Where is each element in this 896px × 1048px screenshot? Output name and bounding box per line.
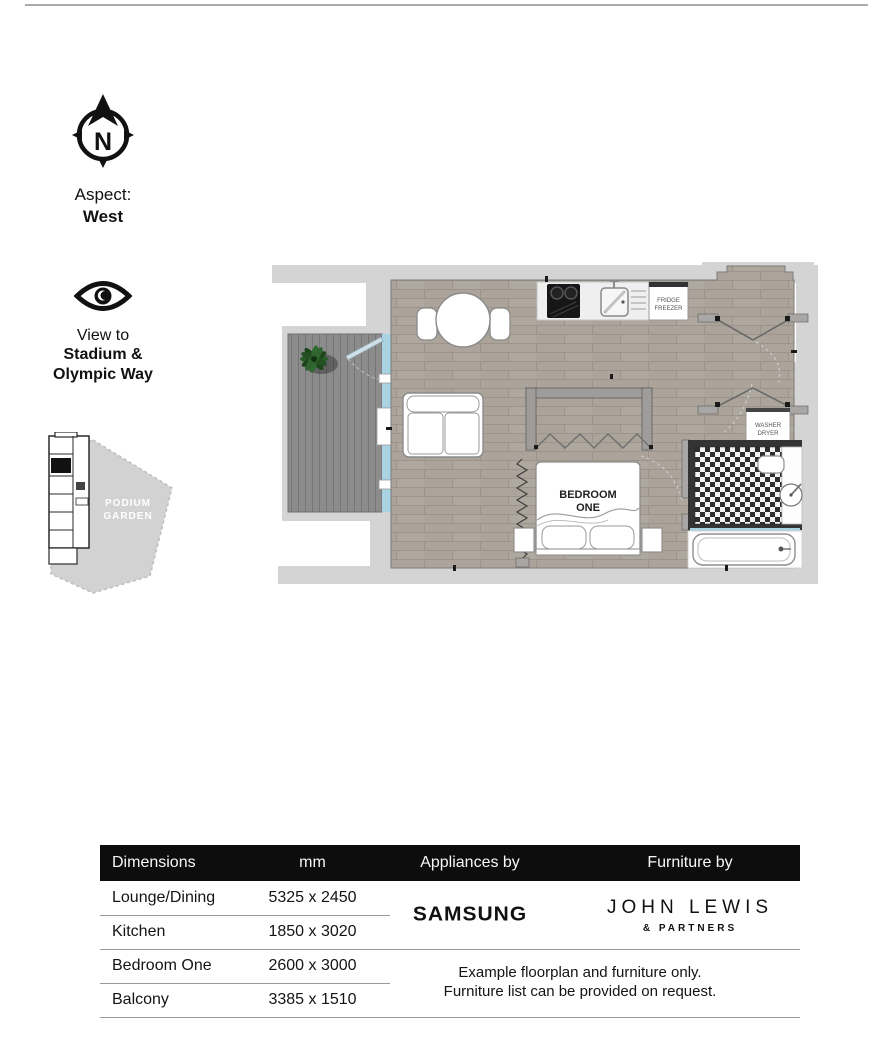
washer-label-line1: WASHER (755, 423, 782, 429)
john-lewis-logo: JOHN LEWIS & PARTNERS (580, 881, 800, 949)
room-size: 3385 x 1510 (265, 991, 360, 1009)
site-plan: PODIUM GARDEN (40, 432, 210, 614)
aspect-value: West (41, 207, 165, 227)
building-outline (49, 432, 89, 564)
room-name: Kitchen (100, 923, 265, 941)
shower-screen (690, 528, 800, 531)
table-row: Lounge/Dining 5325 x 2450 (100, 881, 385, 915)
room-size: 1850 x 3020 (265, 923, 360, 941)
view-value-line1: Stadium & (33, 345, 173, 365)
garden-label-line2: GARDEN (103, 511, 152, 522)
fridge-freezer: FRIDGE FREEZER (649, 282, 688, 320)
disclaimer-line2: Furniture list can be provided on reques… (444, 983, 717, 1002)
room-name: Lounge/Dining (100, 889, 265, 907)
dining-table (436, 293, 490, 347)
table-row: Bedroom One 2600 x 3000 (100, 949, 385, 983)
disclaimer-note: Example floorplan and furniture only. Fu… (360, 949, 800, 1017)
header-appliances: Appliances by (360, 854, 580, 872)
top-divider (25, 4, 868, 6)
fridge-label-line2: FREEZER (654, 306, 683, 312)
sofa (403, 393, 483, 457)
header-mm: mm (265, 854, 360, 872)
garden-label-line1: PODIUM (105, 498, 151, 509)
header-dimensions: Dimensions (100, 854, 265, 872)
toilet-icon (758, 456, 784, 473)
header-furniture: Furniture by (580, 854, 800, 872)
room-size: 2600 x 3000 (265, 957, 360, 975)
samsung-logo: SAMSUNG (360, 883, 580, 948)
table-row: Kitchen 1850 x 3020 (100, 915, 385, 949)
apartment-floorplan: FRIDGE FREEZER (270, 262, 820, 586)
view-value-line2: Olympic Way (33, 365, 173, 385)
compass-block: N Aspect: West (41, 92, 165, 227)
bed: BEDROOM ONE (514, 462, 662, 555)
table-row: Balcony 3385 x 1510 (100, 983, 385, 1017)
floorplan-page: N Aspect: West View to Stadium & Olympic… (0, 0, 896, 1048)
aspect-label: Aspect: (41, 185, 165, 205)
kitchen-counter: FRIDGE FREEZER (537, 281, 688, 320)
john-lewis-logo-line1: JOHN LEWIS (607, 897, 773, 919)
bathtub-icon (688, 531, 802, 568)
table-bottom-border (100, 1017, 800, 1018)
bedroom-label-line1: BEDROOM (559, 489, 616, 501)
table-header-row: Dimensions mm Appliances by Furniture by (100, 845, 800, 881)
disclaimer-line1: Example floorplan and furniture only. (458, 964, 701, 983)
nightstand-left (514, 528, 534, 552)
partition-wall-stub (516, 558, 529, 567)
fridge-label-line1: FRIDGE (657, 298, 680, 304)
row-separator (100, 983, 390, 984)
nightstand-right (642, 528, 662, 552)
compass-north-icon: N (65, 92, 141, 170)
room-name: Bedroom One (100, 957, 265, 975)
john-lewis-logo-line2: & PARTNERS (643, 923, 737, 934)
dimensions-table: Dimensions mm Appliances by Furniture by… (100, 845, 800, 1019)
eye-icon (74, 278, 132, 314)
subject-unit-marker (51, 458, 71, 473)
view-label: View to (33, 327, 173, 345)
pillow-right (590, 526, 634, 549)
washer-label-line2: DRYER (758, 431, 780, 437)
compass-letter: N (94, 128, 112, 156)
room-size: 5325 x 2450 (265, 889, 360, 907)
room-name: Balcony (100, 991, 265, 1009)
row-separator (100, 915, 390, 916)
bedroom-label-line2: ONE (576, 502, 600, 514)
basin-icon (780, 484, 802, 506)
pillow-left (542, 526, 586, 549)
view-block: View to Stadium & Olympic Way (33, 278, 173, 385)
